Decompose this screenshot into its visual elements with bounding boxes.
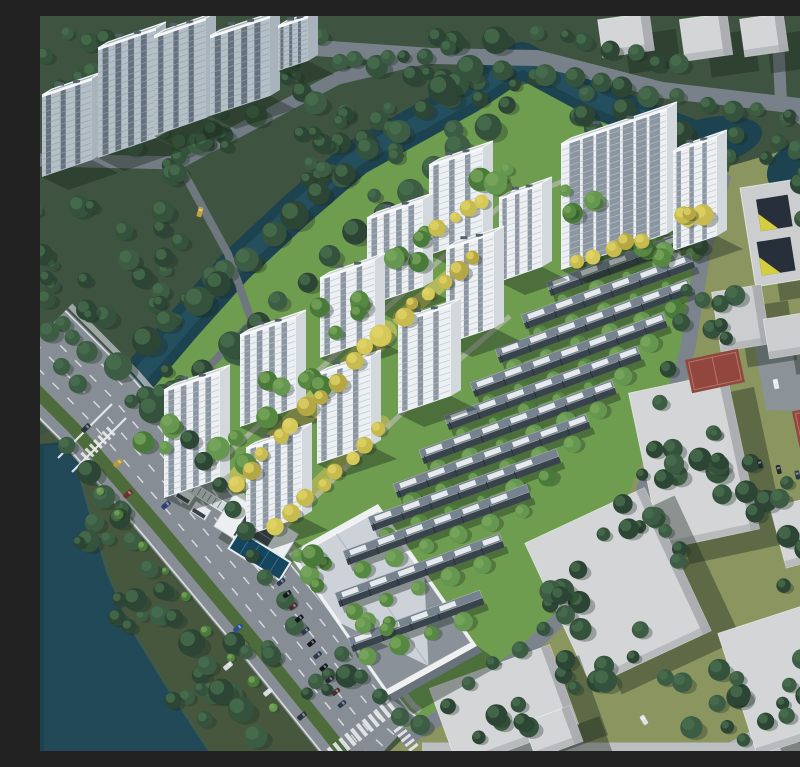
masterplan-aerial-view xyxy=(40,16,800,751)
scene-canvas xyxy=(40,16,800,751)
